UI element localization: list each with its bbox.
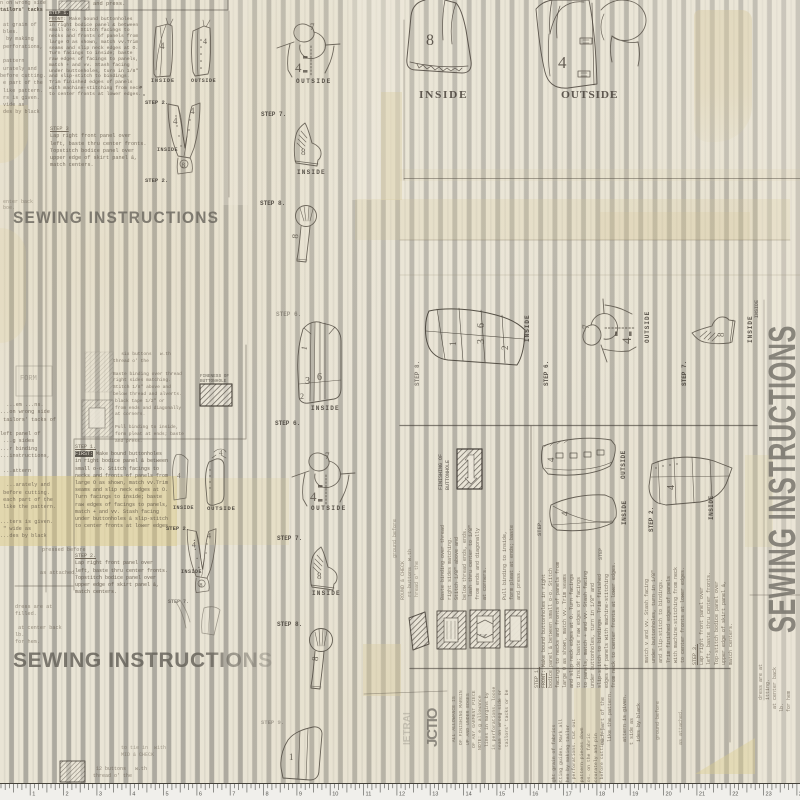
svg-text:4: 4 [160, 41, 165, 51]
svg-text:20: 20 [666, 792, 672, 798]
svg-text:10: 10 [332, 792, 338, 798]
svg-text:8: 8 [426, 32, 434, 49]
svg-text:8: 8 [266, 792, 269, 798]
svg-text:14: 14 [466, 792, 472, 798]
svg-text:2: 2 [66, 792, 69, 798]
svg-text:FORM: FORM [20, 375, 37, 383]
svg-text:4: 4 [546, 457, 556, 462]
svg-text:4: 4 [173, 116, 178, 126]
svg-text:8: 8 [310, 656, 320, 662]
svg-text:4: 4 [203, 37, 207, 46]
svg-text:3: 3 [99, 792, 102, 798]
svg-text:22: 22 [732, 792, 738, 798]
svg-text:3: 3 [476, 339, 487, 344]
svg-text:4: 4 [177, 472, 181, 480]
svg-text:6: 6 [476, 323, 487, 328]
svg-text:13: 13 [432, 792, 438, 798]
svg-text:4: 4 [666, 485, 677, 490]
svg-text:8: 8 [182, 162, 186, 170]
svg-text:23: 23 [766, 792, 772, 798]
svg-text:4: 4 [132, 792, 135, 798]
svg-text:9: 9 [299, 792, 302, 798]
svg-text:16: 16 [532, 792, 538, 798]
svg-text:4: 4 [560, 511, 570, 516]
svg-text:11: 11 [366, 792, 372, 798]
svg-text:7: 7 [232, 792, 235, 798]
svg-text:21: 21 [699, 792, 705, 798]
svg-text:5: 5 [166, 792, 169, 798]
svg-text:3: 3 [305, 376, 310, 387]
svg-text:1: 1 [32, 792, 35, 798]
svg-text:6: 6 [317, 372, 322, 383]
svg-text:6: 6 [199, 792, 202, 798]
svg-text:15: 15 [499, 792, 505, 798]
svg-text:18: 18 [599, 792, 605, 798]
svg-text:4: 4 [219, 449, 223, 457]
svg-text:4: 4 [558, 53, 567, 72]
svg-text:1: 1 [448, 342, 458, 347]
svg-text:4: 4 [295, 60, 302, 75]
svg-text:8: 8 [290, 233, 300, 239]
svg-text:1: 1 [300, 345, 310, 351]
svg-text:2: 2 [500, 346, 510, 351]
svg-text:17: 17 [566, 792, 572, 798]
svg-text:4: 4 [190, 106, 195, 116]
svg-text:7: 7 [310, 22, 315, 32]
svg-text:12: 12 [399, 792, 405, 798]
svg-text:1: 1 [289, 752, 294, 762]
svg-text:19: 19 [632, 792, 638, 798]
svg-text:2: 2 [300, 392, 304, 401]
svg-text:8: 8 [301, 147, 306, 157]
